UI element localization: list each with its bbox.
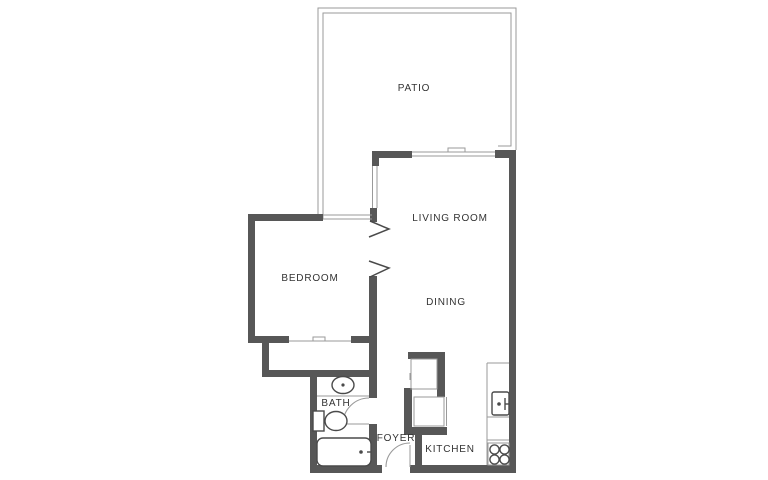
floor-plan-svg: PATIO LIVING ROOM BEDROOM DINING BATH FO… xyxy=(0,0,768,480)
bathtub xyxy=(317,438,371,466)
toilet xyxy=(313,411,347,431)
wall-bedroom-bottom-left xyxy=(248,336,289,343)
bath-fixtures xyxy=(313,377,371,467)
wall-bedroom-bottom-right xyxy=(351,336,376,343)
walls xyxy=(248,150,516,473)
utility-closet-lower xyxy=(414,397,444,426)
room-label-dining: DINING xyxy=(426,297,466,308)
wall-utility-right xyxy=(437,352,445,397)
patio-sliding-door xyxy=(412,148,495,156)
wall-kitchen-bottom xyxy=(410,465,516,473)
utility-closet-upper xyxy=(411,359,437,389)
bath-sink xyxy=(332,377,354,394)
room-label-living-room: LIVING ROOM xyxy=(412,213,487,224)
wall-right xyxy=(509,150,516,472)
room-label-foyer: FOYER xyxy=(377,433,415,444)
bedroom-door-chevron-lower xyxy=(369,261,389,277)
bedroom-patio-window xyxy=(323,215,372,219)
room-label-kitchen: KITCHEN xyxy=(425,444,475,455)
wall-bedroom-top xyxy=(250,214,323,221)
bedroom-door-chevron-upper xyxy=(369,221,389,237)
wall-livingroom-left-stub-upper xyxy=(372,151,379,166)
wall-bedroom-left xyxy=(248,214,255,343)
room-label-patio: PATIO xyxy=(398,83,431,94)
windows xyxy=(289,148,495,341)
bedroom-closet-doors xyxy=(289,337,351,341)
stove xyxy=(488,443,509,465)
kitchen-fixtures xyxy=(488,392,509,465)
kitchen-sink xyxy=(492,392,509,415)
wall-closet-bottom xyxy=(262,370,376,377)
floor-plan-page: PATIO LIVING ROOM BEDROOM DINING BATH FO… xyxy=(0,0,768,480)
entry-door xyxy=(386,443,410,467)
patio-outline xyxy=(318,8,516,219)
living-room-side-window xyxy=(373,166,378,208)
room-label-bedroom: BEDROOM xyxy=(281,273,338,284)
room-label-bath: BATH xyxy=(321,398,350,409)
